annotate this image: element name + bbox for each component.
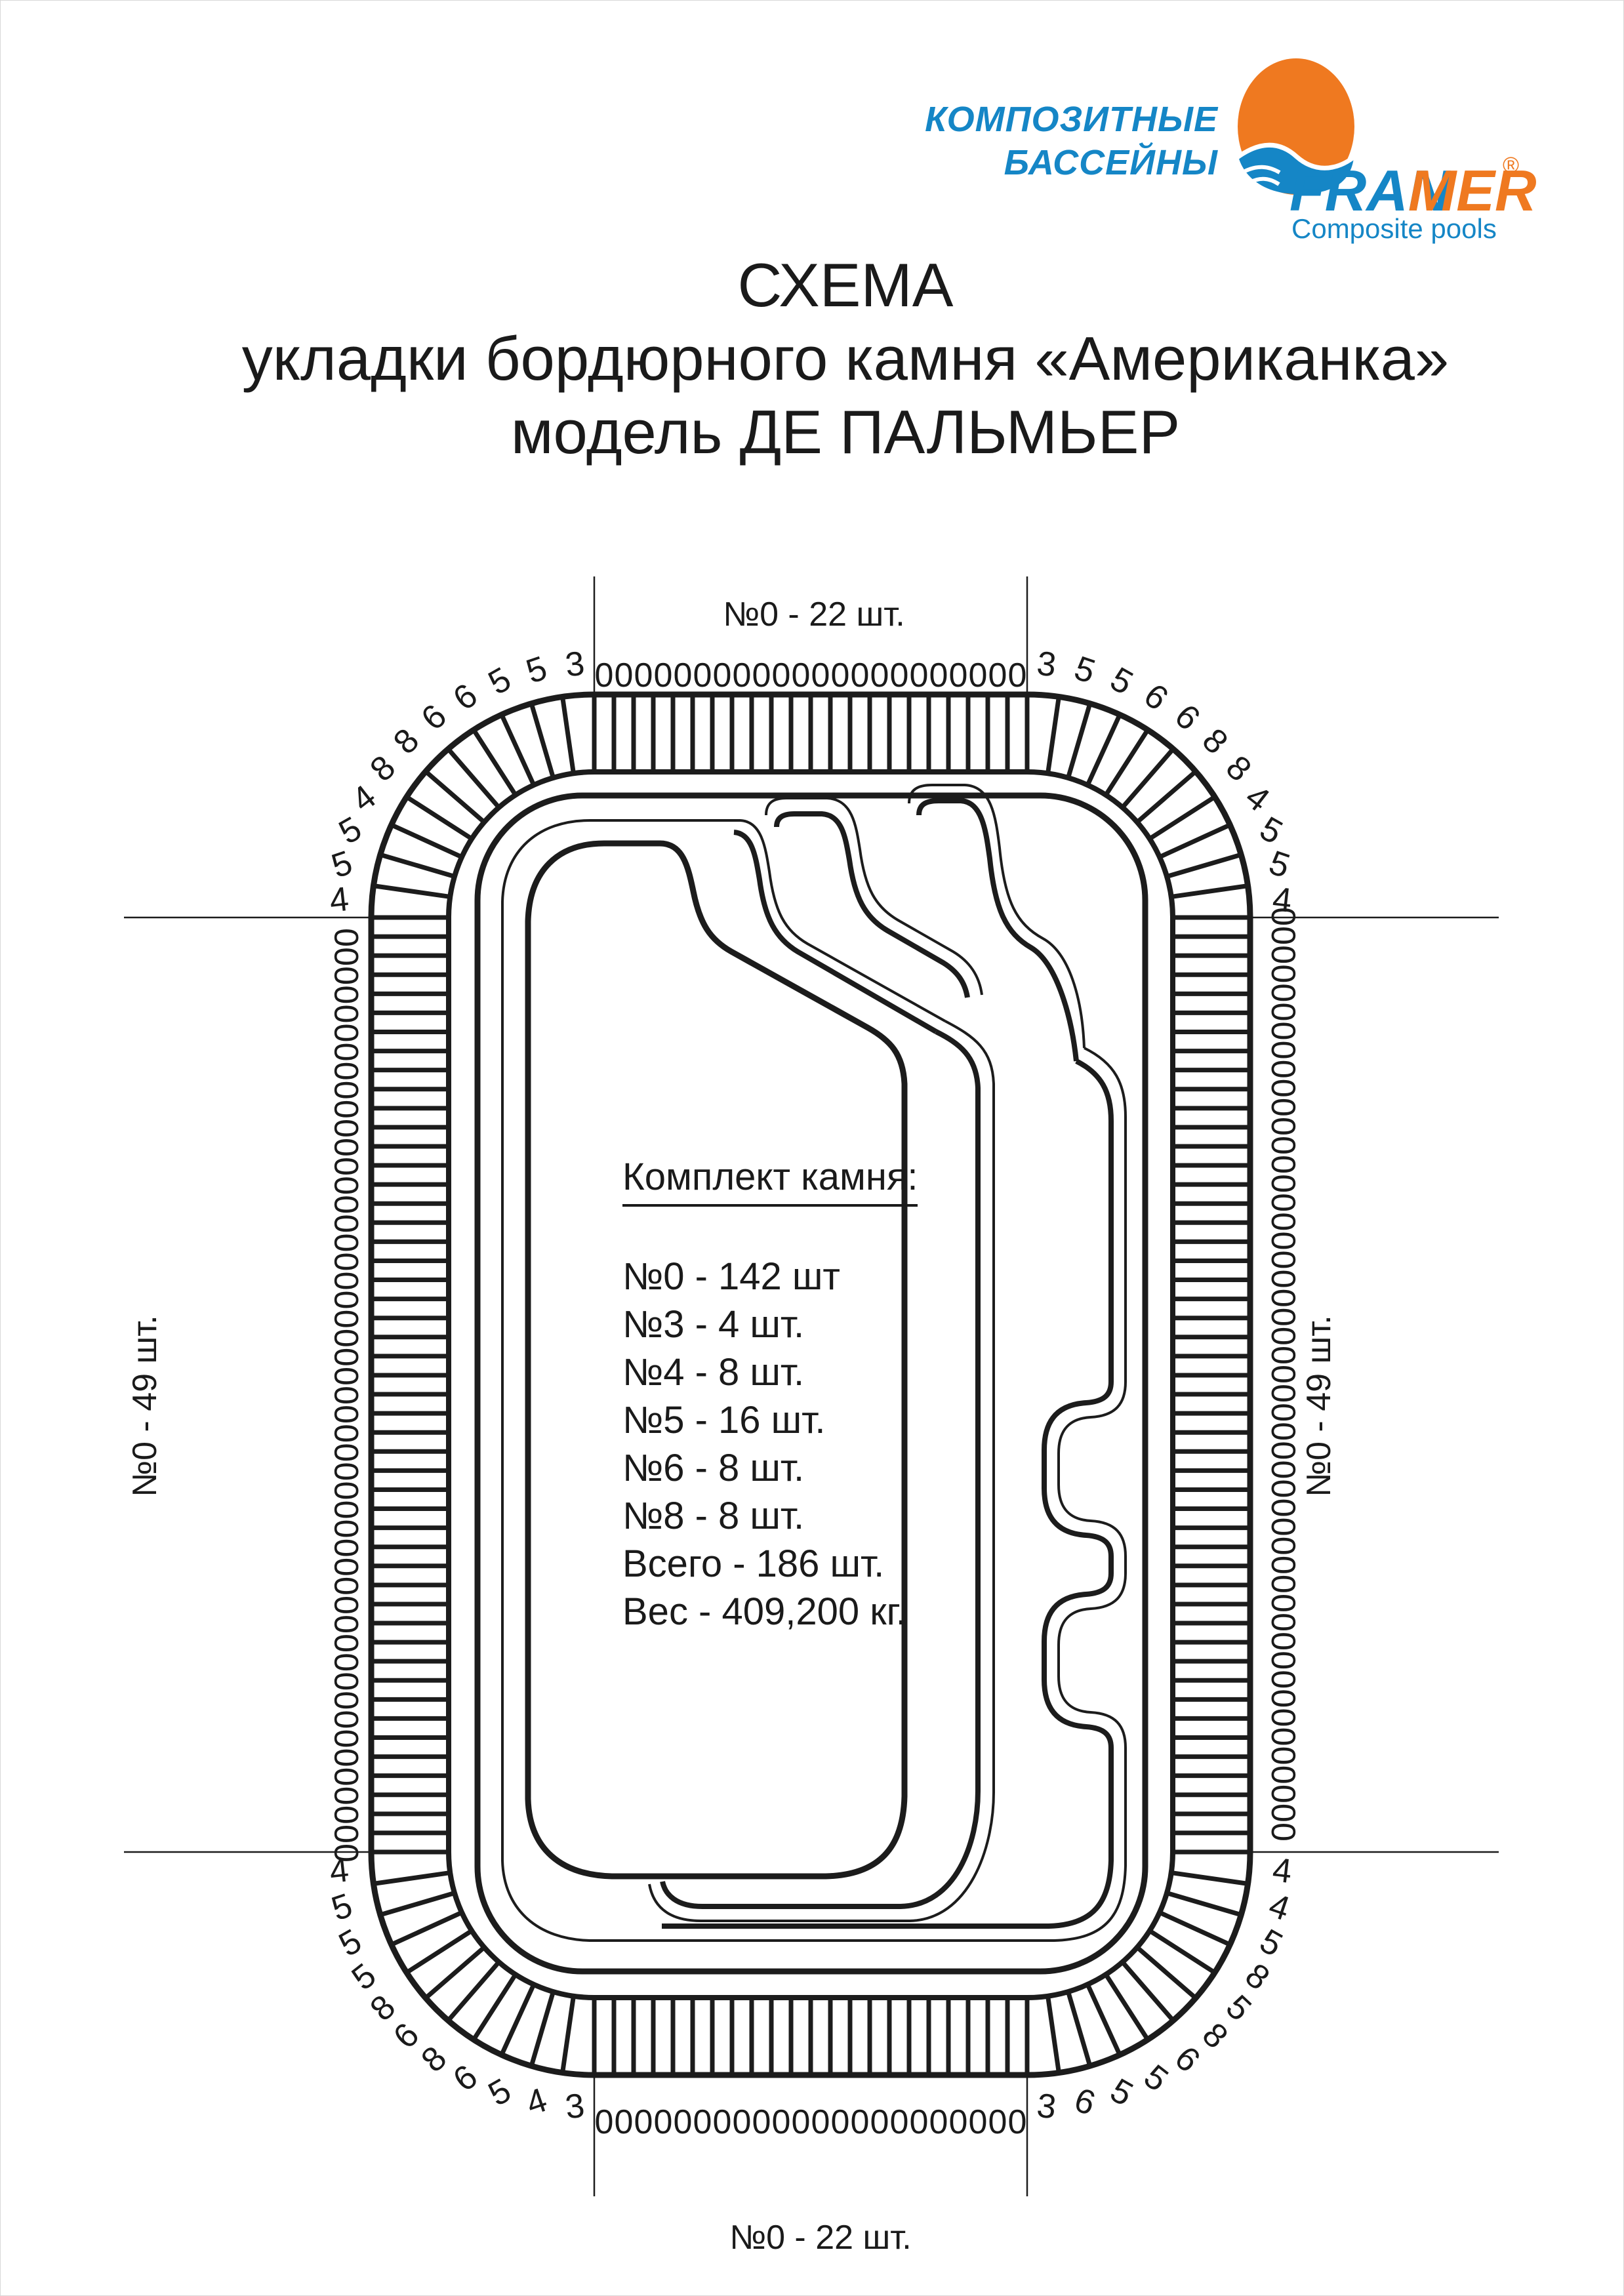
- svg-text:0: 0: [988, 2103, 1007, 2141]
- svg-text:0: 0: [328, 1500, 366, 1520]
- legend-item-4: №6 - 8 шт.: [622, 1444, 918, 1492]
- svg-text:0: 0: [1264, 1460, 1302, 1479]
- step-edge-3-inner: [777, 814, 967, 997]
- svg-text:5: 5: [1070, 649, 1100, 691]
- svg-text:0: 0: [890, 2103, 909, 2141]
- svg-text:0: 0: [949, 656, 968, 695]
- svg-text:0: 0: [1264, 1537, 1302, 1556]
- svg-text:6: 6: [1070, 2081, 1100, 2123]
- svg-text:0: 0: [1264, 1022, 1302, 1041]
- svg-text:0: 0: [328, 1462, 366, 1481]
- svg-text:0: 0: [1264, 1079, 1302, 1098]
- svg-text:0: 0: [328, 1824, 366, 1843]
- svg-text:5: 5: [327, 1886, 357, 1928]
- svg-text:0: 0: [890, 656, 909, 695]
- svg-text:0: 0: [328, 1767, 366, 1786]
- svg-text:0: 0: [328, 1062, 366, 1081]
- svg-text:4: 4: [327, 880, 350, 920]
- svg-text:0: 0: [328, 1424, 366, 1443]
- svg-text:0: 0: [654, 656, 673, 695]
- svg-text:0: 0: [328, 1405, 366, 1424]
- svg-text:5: 5: [1104, 660, 1139, 702]
- svg-text:0: 0: [328, 1214, 366, 1233]
- svg-text:0: 0: [674, 2103, 693, 2141]
- svg-text:0: 0: [328, 1176, 366, 1195]
- svg-text:0: 0: [328, 928, 366, 947]
- svg-text:0: 0: [328, 1691, 366, 1710]
- svg-text:0: 0: [328, 1272, 366, 1291]
- svg-text:0: 0: [910, 656, 929, 695]
- svg-text:0: 0: [811, 656, 830, 695]
- svg-text:0: 0: [1264, 1231, 1302, 1250]
- svg-text:3: 3: [1035, 2087, 1058, 2127]
- svg-text:0: 0: [1264, 1765, 1302, 1784]
- svg-text:0: 0: [328, 1481, 366, 1500]
- step-edge-4-outer: [909, 785, 1084, 1048]
- svg-text:0: 0: [615, 2103, 634, 2141]
- svg-text:0: 0: [1264, 1613, 1302, 1632]
- svg-text:0: 0: [733, 2103, 752, 2141]
- svg-text:0: 0: [328, 1786, 366, 1805]
- svg-text:0: 0: [1264, 1651, 1302, 1670]
- svg-text:0: 0: [1264, 964, 1302, 983]
- svg-text:0: 0: [1264, 1594, 1302, 1613]
- svg-text:0: 0: [328, 1615, 366, 1634]
- svg-text:0: 0: [713, 2103, 732, 2141]
- svg-text:0: 0: [1264, 1499, 1302, 1518]
- svg-text:6: 6: [446, 676, 484, 718]
- svg-text:0: 0: [328, 1195, 366, 1214]
- svg-text:0: 0: [328, 1252, 366, 1271]
- svg-text:0: 0: [328, 1004, 366, 1023]
- svg-text:0: 0: [1264, 945, 1302, 964]
- svg-text:0: 0: [1264, 1098, 1302, 1117]
- svg-text:5: 5: [1253, 1922, 1289, 1964]
- svg-text:0: 0: [328, 1805, 366, 1824]
- svg-text:0: 0: [693, 2103, 712, 2141]
- svg-text:0: 0: [811, 2103, 830, 2141]
- svg-text:0: 0: [328, 1577, 366, 1596]
- svg-text:0: 0: [988, 656, 1007, 695]
- svg-text:0: 0: [328, 1138, 366, 1157]
- svg-text:0: 0: [1264, 1155, 1302, 1174]
- svg-text:0: 0: [654, 2103, 673, 2141]
- svg-text:0: 0: [733, 656, 752, 695]
- svg-text:0: 0: [1264, 1251, 1302, 1270]
- legend-item-6: Всего - 186 шт.: [622, 1540, 918, 1588]
- svg-text:3: 3: [1035, 645, 1058, 685]
- pool-stone-layout-diagram: 0000000000000000000000000000000000000000…: [1, 1, 1624, 2296]
- svg-text:0: 0: [772, 2103, 791, 2141]
- svg-text:0: 0: [831, 656, 850, 695]
- svg-text:6: 6: [414, 697, 454, 738]
- legend-item-3: №5 - 16 шт.: [622, 1396, 918, 1444]
- svg-text:0: 0: [1264, 1708, 1302, 1727]
- svg-text:0: 0: [1264, 983, 1302, 1002]
- svg-text:6: 6: [446, 2057, 484, 2099]
- svg-text:0: 0: [1264, 1823, 1302, 1842]
- svg-text:0: 0: [1264, 1480, 1302, 1499]
- svg-text:3: 3: [563, 2087, 586, 2127]
- svg-text:0: 0: [752, 656, 771, 695]
- svg-text:0: 0: [792, 2103, 811, 2141]
- svg-text:0: 0: [949, 2103, 968, 2141]
- svg-text:0: 0: [328, 1043, 366, 1062]
- svg-text:0: 0: [328, 1157, 366, 1176]
- svg-text:0: 0: [831, 2103, 850, 2141]
- svg-text:0: 0: [752, 2103, 771, 2141]
- svg-text:0: 0: [713, 656, 732, 695]
- svg-text:0: 0: [1264, 1689, 1302, 1708]
- svg-text:0: 0: [1264, 1803, 1302, 1823]
- svg-text:0: 0: [328, 1233, 366, 1252]
- svg-text:0: 0: [328, 1081, 366, 1100]
- svg-text:0: 0: [634, 656, 653, 695]
- svg-text:0: 0: [929, 2103, 948, 2141]
- svg-text:4: 4: [1270, 1851, 1293, 1891]
- svg-text:0: 0: [1264, 1518, 1302, 1537]
- svg-text:6: 6: [1167, 697, 1208, 738]
- svg-text:0: 0: [929, 656, 948, 695]
- legend-item-0: №0 - 142 шт: [622, 1253, 918, 1300]
- svg-text:0: 0: [328, 1291, 366, 1310]
- svg-text:0: 0: [1264, 1365, 1302, 1384]
- svg-text:0: 0: [1264, 1727, 1302, 1746]
- svg-text:0: 0: [595, 2103, 614, 2141]
- svg-text:0: 0: [674, 656, 693, 695]
- svg-text:0: 0: [328, 1710, 366, 1729]
- svg-text:0: 0: [851, 2103, 870, 2141]
- step-edge-2-inner: [734, 832, 936, 1032]
- svg-text:0: 0: [328, 1023, 366, 1042]
- legend-item-7: Вес - 409,200 кг.: [622, 1588, 918, 1636]
- legend-item-5: №8 - 8 шт.: [622, 1492, 918, 1540]
- svg-text:8: 8: [386, 721, 426, 761]
- svg-text:0: 0: [328, 985, 366, 1004]
- svg-text:8: 8: [363, 748, 403, 789]
- svg-text:0: 0: [1264, 1270, 1302, 1289]
- dimension-label-bottom: №0 - 22 шт.: [683, 2217, 958, 2258]
- svg-text:0: 0: [1264, 1422, 1302, 1441]
- stone-kit-legend: Комплект камня: №0 - 142 шт №3 - 4 шт. №…: [622, 1155, 918, 1636]
- svg-text:0: 0: [1008, 656, 1027, 695]
- svg-text:0: 0: [1264, 1784, 1302, 1803]
- svg-text:5: 5: [482, 2071, 518, 2114]
- svg-text:0: 0: [328, 1596, 366, 1615]
- svg-text:0: 0: [851, 656, 870, 695]
- svg-text:0: 0: [328, 1367, 366, 1386]
- svg-text:0: 0: [328, 1443, 366, 1462]
- svg-text:5: 5: [1104, 2071, 1139, 2114]
- svg-text:0: 0: [328, 1348, 366, 1367]
- svg-text:0: 0: [1264, 1670, 1302, 1689]
- svg-text:5: 5: [521, 649, 552, 691]
- svg-text:0: 0: [595, 656, 614, 695]
- svg-text:0: 0: [328, 1634, 366, 1653]
- svg-text:0: 0: [1264, 1136, 1302, 1155]
- svg-text:5: 5: [482, 660, 518, 702]
- svg-text:0: 0: [910, 2103, 929, 2141]
- svg-text:3: 3: [563, 645, 586, 685]
- svg-text:0: 0: [1264, 1193, 1302, 1212]
- svg-text:0: 0: [328, 1539, 366, 1558]
- svg-text:4: 4: [1265, 1886, 1295, 1928]
- legend-heading: Комплект камня:: [622, 1155, 918, 1207]
- dimension-label-right: №0 - 49 шт.: [1299, 1268, 1339, 1544]
- svg-text:5: 5: [333, 1922, 368, 1964]
- svg-text:0: 0: [1264, 1441, 1302, 1460]
- svg-text:0: 0: [328, 1119, 366, 1138]
- svg-text:0: 0: [1264, 1556, 1302, 1575]
- svg-text:0: 0: [1264, 1575, 1302, 1594]
- svg-text:4: 4: [521, 2081, 552, 2123]
- svg-text:0: 0: [1264, 1002, 1302, 1021]
- scheme-page: КОМПОЗИТНЫЕ БАССЕЙНЫ FRAN MER ® Composit…: [0, 0, 1624, 2296]
- svg-text:0: 0: [1264, 1346, 1302, 1365]
- svg-text:0: 0: [1264, 926, 1302, 945]
- svg-text:0: 0: [870, 2103, 889, 2141]
- svg-text:0: 0: [870, 656, 889, 695]
- svg-text:0: 0: [792, 656, 811, 695]
- svg-text:8: 8: [1195, 721, 1235, 761]
- svg-text:0: 0: [772, 656, 791, 695]
- svg-text:0: 0: [1264, 1212, 1302, 1231]
- svg-text:0: 0: [1264, 1746, 1302, 1765]
- svg-text:0: 0: [1264, 1117, 1302, 1136]
- svg-text:0: 0: [1264, 1403, 1302, 1422]
- svg-text:0: 0: [615, 656, 634, 695]
- svg-text:0: 0: [328, 1520, 366, 1539]
- svg-text:0: 0: [1264, 1289, 1302, 1308]
- svg-text:0: 0: [693, 656, 712, 695]
- svg-text:0: 0: [328, 947, 366, 966]
- svg-text:0: 0: [328, 1100, 366, 1119]
- svg-text:0: 0: [328, 1310, 366, 1329]
- svg-text:0: 0: [1008, 2103, 1027, 2141]
- svg-text:0: 0: [328, 1653, 366, 1672]
- svg-text:0: 0: [634, 2103, 653, 2141]
- svg-text:0: 0: [328, 1729, 366, 1748]
- dimension-label-top: №0 - 22 шт.: [676, 594, 952, 635]
- svg-text:0: 0: [1264, 1041, 1302, 1060]
- svg-text:0: 0: [1264, 1384, 1302, 1403]
- svg-text:8: 8: [1219, 748, 1259, 789]
- svg-text:0: 0: [1264, 1174, 1302, 1193]
- svg-text:0: 0: [969, 2103, 988, 2141]
- svg-text:0: 0: [328, 1329, 366, 1348]
- legend-item-1: №3 - 4 шт.: [622, 1300, 918, 1348]
- svg-text:0: 0: [328, 1386, 366, 1405]
- svg-text:0: 0: [1264, 1327, 1302, 1346]
- dimension-label-left: №0 - 49 шт.: [125, 1268, 165, 1544]
- svg-text:0: 0: [328, 1672, 366, 1691]
- svg-text:0: 0: [328, 1558, 366, 1577]
- svg-text:0: 0: [1264, 1632, 1302, 1651]
- svg-text:0: 0: [328, 966, 366, 985]
- svg-text:0: 0: [1264, 1308, 1302, 1327]
- legend-item-2: №4 - 8 шт.: [622, 1348, 918, 1396]
- svg-text:0: 0: [328, 1748, 366, 1767]
- svg-text:6: 6: [1137, 676, 1175, 718]
- svg-text:0: 0: [1264, 1060, 1302, 1079]
- svg-text:0: 0: [969, 656, 988, 695]
